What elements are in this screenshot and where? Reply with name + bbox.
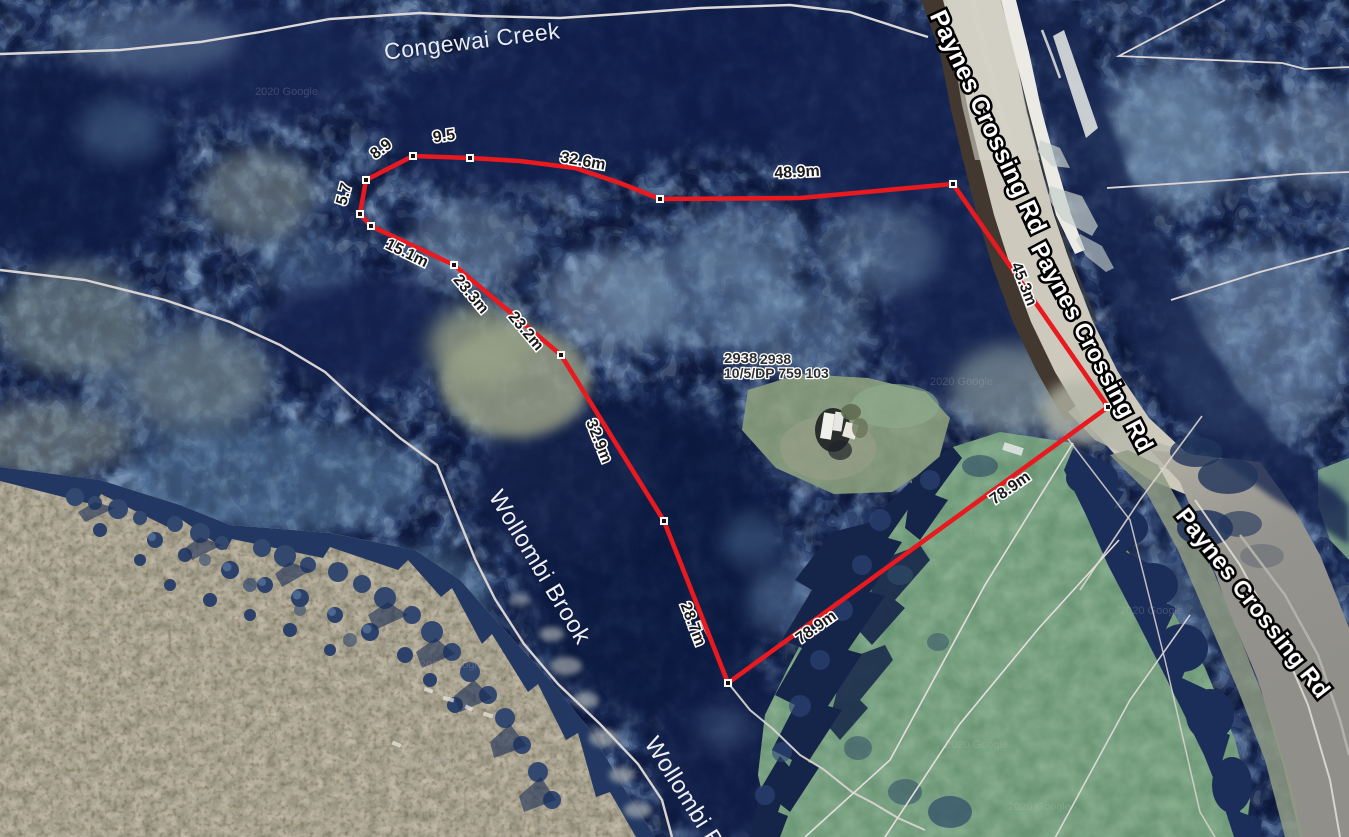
svg-text:10/5/DP 759 103: 10/5/DP 759 103 — [724, 365, 829, 381]
svg-text:2020 Google: 2020 Google — [255, 86, 318, 98]
svg-text:2020 Google: 2020 Google — [1008, 801, 1071, 813]
svg-text:2020 Google: 2020 Google — [930, 376, 993, 388]
svg-text:48.9m: 48.9m — [774, 163, 820, 182]
svg-text:2020 Google: 2020 Google — [1120, 605, 1183, 617]
svg-text:2020 Google: 2020 Google — [395, 757, 458, 769]
svg-text:2020 Google: 2020 Google — [218, 727, 281, 739]
svg-text:9.5: 9.5 — [432, 127, 456, 147]
svg-text:2020 Google: 2020 Google — [420, 659, 483, 671]
svg-text:2020 Google: 2020 Google — [945, 739, 1008, 751]
